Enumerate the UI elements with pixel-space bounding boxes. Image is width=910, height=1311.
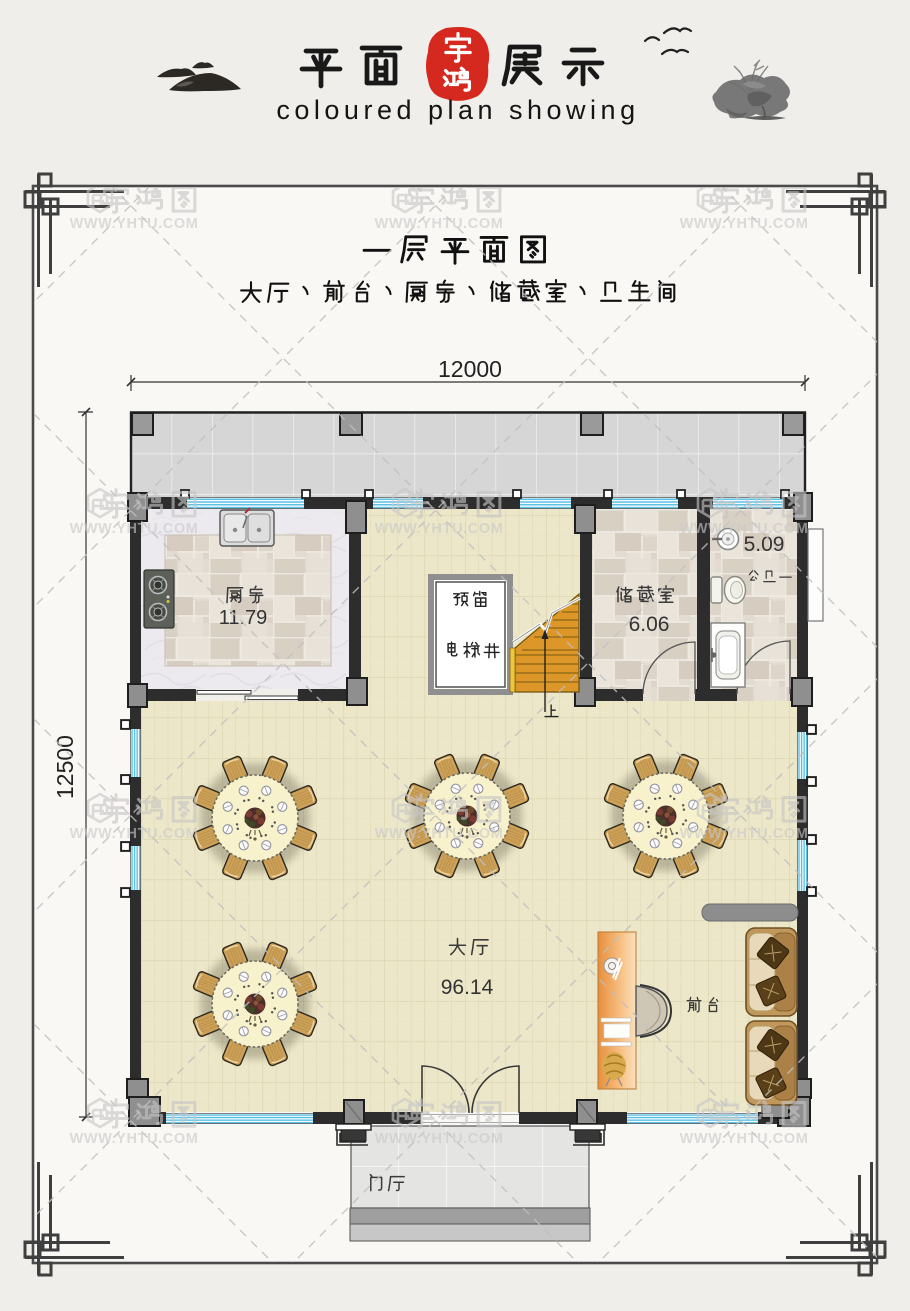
svg-text:coloured plan showing: coloured plan showing	[276, 95, 639, 125]
